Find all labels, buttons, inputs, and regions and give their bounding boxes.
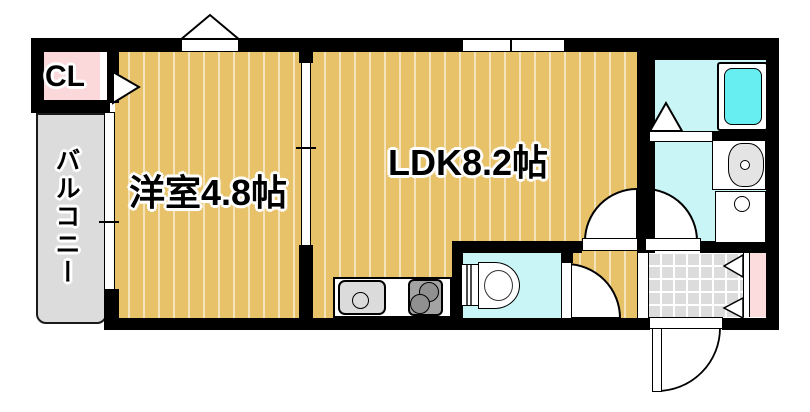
- ldk-label: LDK8.2帖: [348, 134, 588, 186]
- floor-plan: CL バルコニー 洋室4.8帖 LDK8.2帖: [0, 0, 810, 412]
- wall-segment: [31, 38, 313, 52]
- wall-segment: [107, 52, 119, 103]
- hall-entrance-opening: [637, 253, 649, 318]
- balcony-label: バルコニー: [48, 147, 84, 297]
- sliding-door-tick: [296, 147, 316, 149]
- toilet-tank-line: [470, 265, 472, 305]
- bathtub-icon: [724, 68, 762, 125]
- entrance-door-swing: [657, 328, 720, 391]
- wall-segment: [104, 318, 650, 330]
- toilet-door-leaf: [561, 262, 572, 319]
- toilet-tank-line: [466, 265, 468, 305]
- toilet-seat: [484, 270, 513, 301]
- wall-segment: [637, 38, 779, 60]
- entrance-tile-floor: [649, 253, 743, 317]
- entrance-door-leaf: [652, 328, 662, 392]
- wall-segment: [299, 38, 313, 63]
- ldk-door-leaf: [582, 238, 638, 251]
- window-tick: [99, 221, 119, 223]
- sliding-door-western-ldk: [301, 63, 311, 245]
- washroom-door-leaf: [645, 238, 701, 251]
- closet-label: CL: [40, 60, 90, 94]
- wall-segment: [31, 100, 110, 113]
- entrance-step-strip: [743, 253, 750, 317]
- washbasin-drain: [740, 160, 750, 170]
- sink-drain: [352, 292, 369, 309]
- wall-segment: [452, 241, 582, 253]
- window-western-room: [181, 39, 239, 52]
- window-mullion: [510, 39, 512, 52]
- washer-drain: [734, 196, 750, 212]
- window-ldk: [462, 39, 565, 52]
- wall-segment: [637, 38, 655, 253]
- stove-burner: [410, 294, 430, 314]
- western-room-label: 洋室4.8帖: [110, 164, 306, 216]
- bath-door-threshold: [649, 131, 713, 142]
- shoe-cabinet: [750, 253, 766, 317]
